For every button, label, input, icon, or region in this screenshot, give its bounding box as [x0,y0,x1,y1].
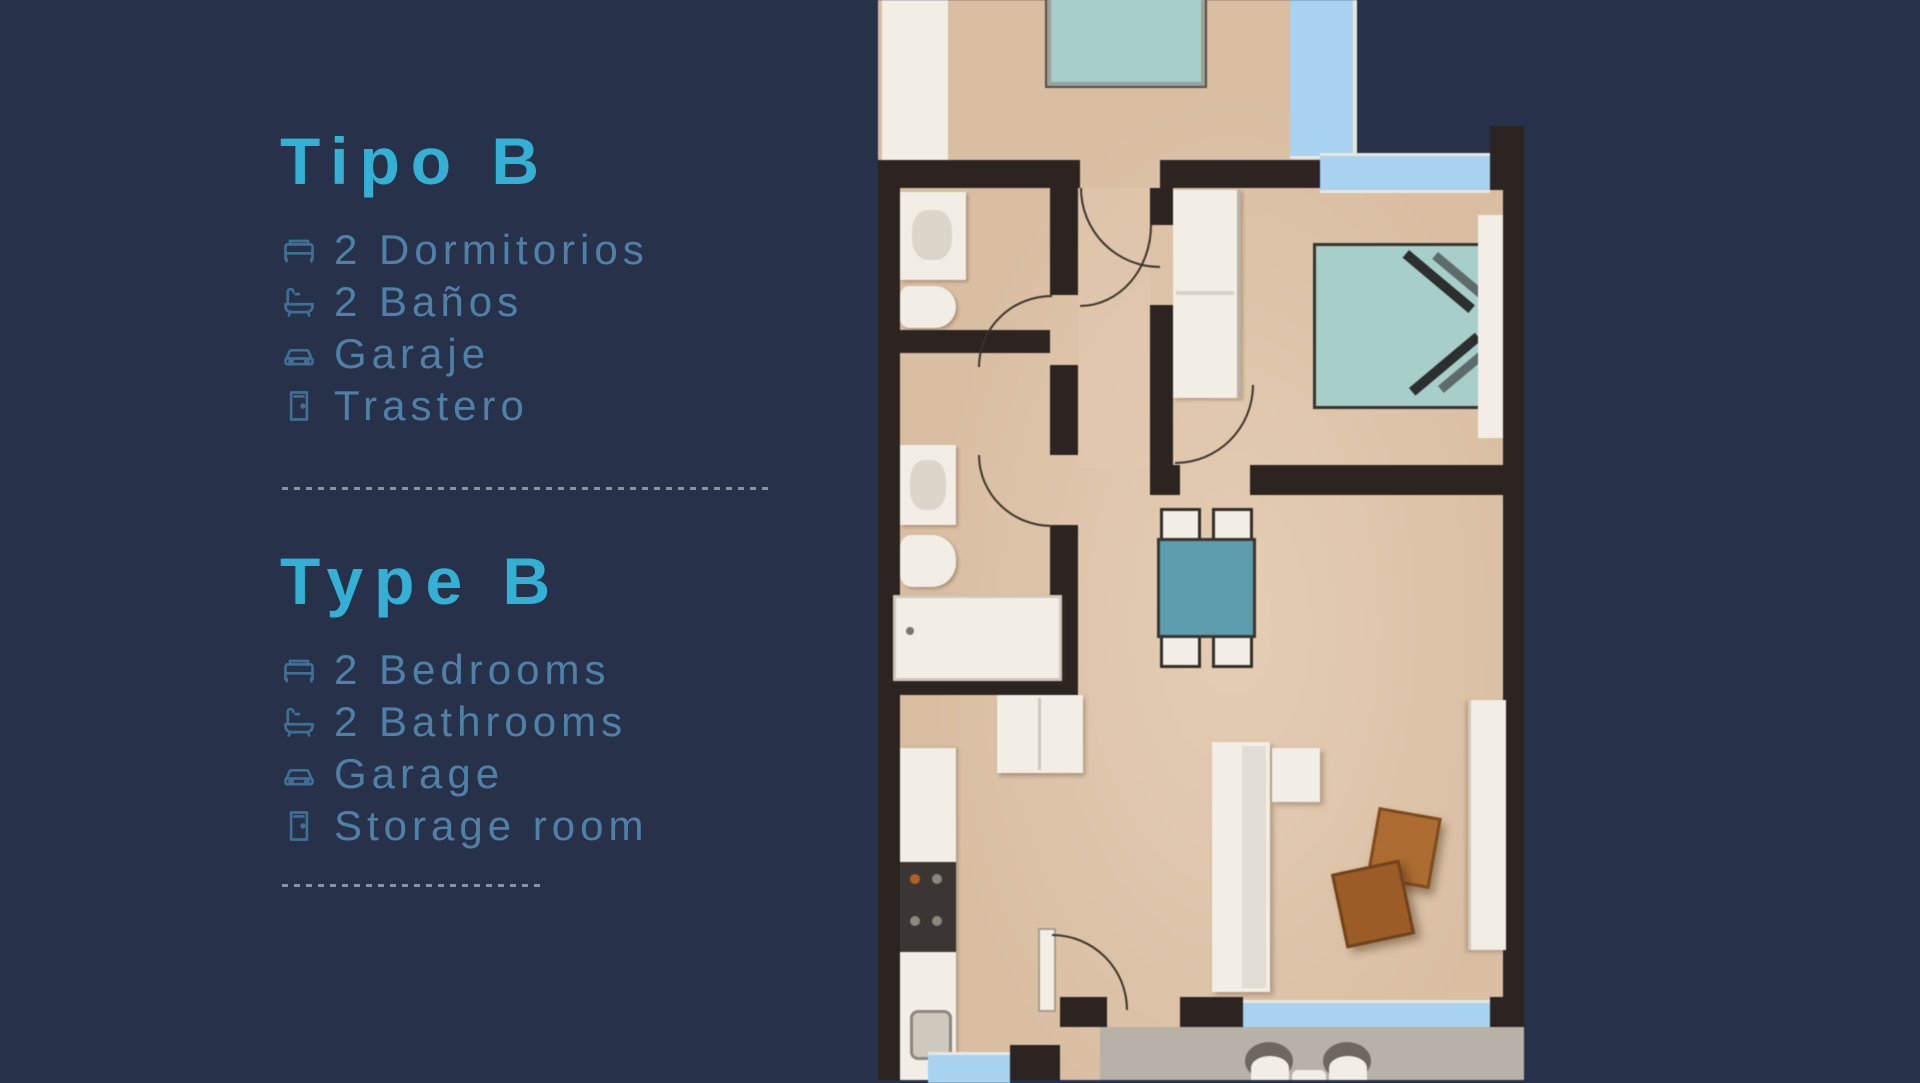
list-item: 2 Dormitorios [280,228,649,271]
feature-list-en: 2 Bedrooms 2 Bathrooms Garage Storage ro… [280,648,648,847]
terrace-window-strip [1290,0,1357,159]
feature-label: 2 Dormitorios [334,226,649,274]
feature-label: Garaje [334,330,490,378]
wardrobe-divider [1176,291,1234,295]
feature-label: 2 Bathrooms [334,698,627,746]
list-item: Garaje [280,332,649,375]
dashed-divider-bottom [282,884,544,887]
section-spanish: Tipo B 2 Dormitorios 2 Baños Garaje Tras… [280,128,649,436]
wall-corner-block [1490,126,1524,190]
wall-terrace-corner [1490,997,1524,1030]
list-item: 2 Baños [280,280,649,323]
section-title-en: Type B [280,548,648,614]
feature-label: Garage [334,750,504,798]
wall-right-exterior [1503,186,1524,1005]
sofa-cushions [1242,746,1266,988]
dining-table [1157,538,1256,638]
wall-hall-left [1050,365,1078,455]
door-icon [280,387,318,425]
shower-tray [893,595,1062,681]
bed-2 [1313,243,1489,409]
feature-list-es: 2 Dormitorios 2 Baños Garaje Trastero [280,228,649,427]
sideboard [1468,700,1506,950]
white-wall-strip [882,0,948,162]
bed-2-headboard [1478,215,1503,438]
wall-living-bottom [1180,997,1243,1027]
feature-label: 2 Baños [334,278,523,326]
terrace-chair [1251,1056,1289,1080]
stove-burner [932,874,942,884]
feature-label: 2 Bedrooms [334,646,610,694]
shower-drain [906,627,914,635]
bedroom2-window [1320,153,1490,193]
list-item: Trastero [280,384,649,427]
floorplan [860,0,1524,1080]
sink-basin-2 [910,460,946,510]
toilet-1 [900,286,956,328]
page: { "background_color": "#273149", "panel"… [0,0,1920,1080]
feature-label: Trastero [334,382,529,430]
wall-bedroom2-bottom [1150,465,1180,495]
bath-icon [280,703,318,741]
stove-burner [910,874,920,884]
car-icon [280,335,318,373]
bed-icon [280,651,318,689]
stove [900,862,956,952]
list-item: 2 Bathrooms [280,700,648,743]
wall-hall-right [1150,305,1173,465]
wall-top-left [878,160,1080,188]
feature-label: Storage room [334,802,648,850]
bed-icon [280,231,318,269]
toilet-2 [900,535,956,587]
section-english: Type B 2 Bedrooms 2 Bathrooms Garage Sto… [280,548,648,856]
ottoman [1272,748,1320,802]
wall-bottom-left [1010,1045,1060,1080]
stove-burner [910,916,920,926]
terrace-table [1292,1070,1326,1080]
fridge-divider [1038,698,1041,770]
list-item: 2 Bedrooms [280,648,648,691]
car-icon [280,755,318,793]
wall-bedroom2-bottom [1250,465,1523,495]
wall-top-right [1160,160,1320,188]
terrace-chair [1329,1056,1367,1080]
door-icon [280,807,318,845]
bed-1 [1047,0,1205,86]
bath-icon [280,283,318,321]
section-title-es: Tipo B [280,128,649,194]
sink-basin-1 [912,210,952,260]
stove-burner [932,916,942,926]
kitchen-window [928,1052,1010,1083]
list-item: Garage [280,752,648,795]
list-item: Storage room [280,804,648,847]
wall-hall-left [1050,188,1078,295]
dashed-divider-top [282,487,770,490]
